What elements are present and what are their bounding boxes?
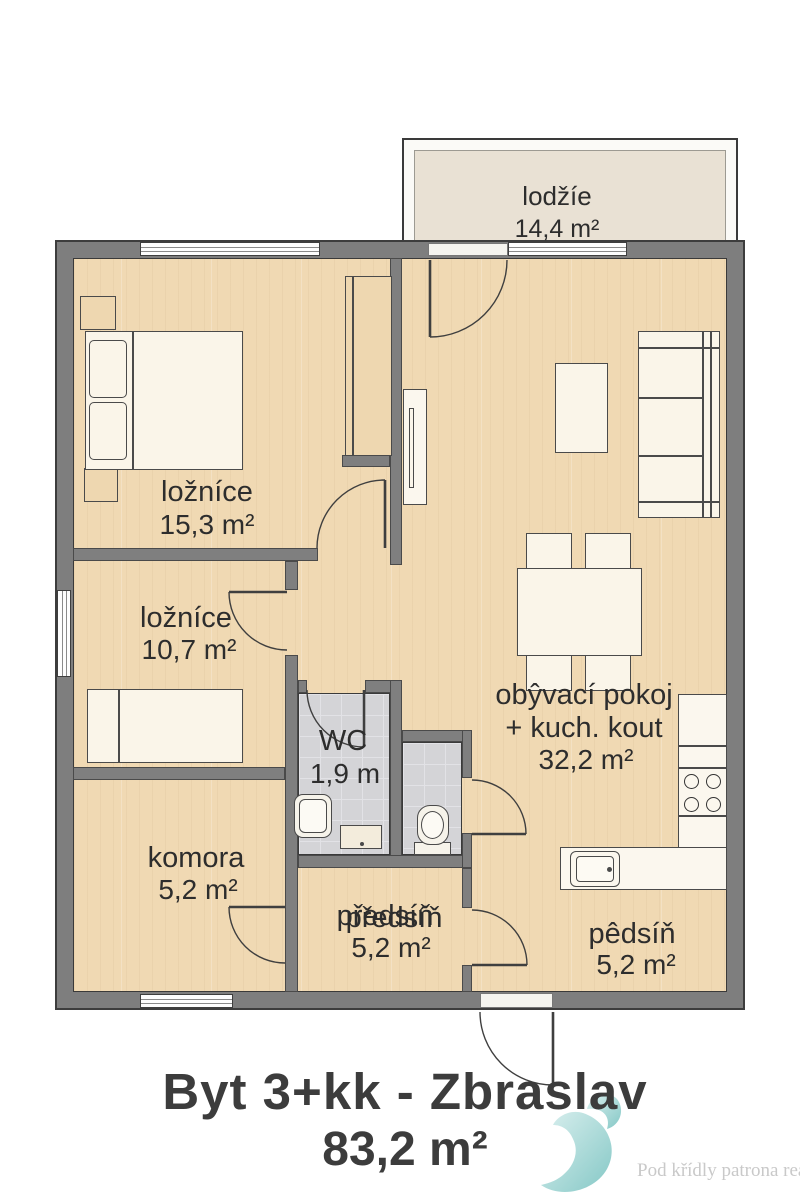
window	[140, 994, 233, 1008]
single-bed	[87, 689, 243, 763]
wall-segment	[462, 868, 472, 908]
counter-line	[679, 745, 726, 747]
wardrobe-line	[352, 277, 354, 455]
room-label-obyvaci-1: obŷvací pokoj	[495, 681, 672, 710]
sofa	[638, 331, 720, 518]
wall-segment	[73, 767, 285, 780]
wall-segment	[462, 730, 472, 778]
balcony-door-threshold	[428, 243, 508, 256]
wall-segment	[462, 965, 472, 992]
pillow	[89, 340, 127, 398]
room-label-chodba-ghost: předsíň	[346, 904, 443, 933]
sofa-armrest-line	[639, 501, 719, 503]
floor-plan-canvas: lodžíe 14,4 m² ložníce 15,3 m² ložníce 1…	[0, 0, 800, 1200]
chair	[585, 533, 631, 571]
tv-stand	[403, 389, 427, 505]
wall-segment	[390, 680, 402, 868]
counter-line	[679, 815, 726, 817]
wall-segment	[342, 455, 390, 467]
chair	[526, 533, 572, 571]
sofa-cushion-line	[639, 455, 703, 457]
stove-burner-icon	[706, 774, 721, 789]
plan-total-area: 83,2 m²	[322, 1122, 487, 1177]
room-area-predsin: 5,2 m²	[596, 951, 675, 979]
window	[57, 590, 71, 677]
wall-segment	[298, 855, 472, 868]
room-area-loznice1: 15,3 m²	[160, 511, 255, 539]
stove-burner-icon	[684, 797, 699, 812]
tv-icon	[409, 408, 414, 488]
wall-segment	[298, 680, 307, 693]
room-area-chodba: 5,2 m²	[351, 934, 430, 962]
room-area-loznice2: 10,7 m²	[142, 636, 237, 664]
room-area-komora: 5,2 m²	[158, 876, 237, 904]
room-label-loznice2: ložníce	[140, 604, 232, 633]
room-label-lodzie: lodžíe	[522, 183, 591, 209]
plan-title: Byt 3+kk - Zbraslav	[162, 1062, 647, 1121]
cabinet-knob-icon	[360, 842, 364, 846]
pillow	[89, 402, 127, 460]
room-area-wc: 1,9 m	[310, 760, 380, 788]
room-label-wc: WC	[319, 727, 367, 756]
room-area-obyvaci: 32,2 m²	[539, 746, 634, 774]
stove-burner-icon	[684, 774, 699, 789]
room-label-komora: komora	[148, 844, 245, 873]
bed-line	[118, 690, 120, 762]
wall-segment	[462, 833, 472, 868]
stove-burner-icon	[706, 797, 721, 812]
coffee-table	[555, 363, 608, 453]
sofa-cushion-line	[639, 397, 703, 399]
room-label-obyvaci-2: + kuch. kout	[505, 714, 662, 743]
washbasin-inner	[299, 799, 327, 833]
toilet-seat	[421, 811, 444, 839]
wall-segment	[73, 548, 318, 561]
nightstand	[84, 468, 118, 502]
sofa-back-line	[710, 332, 712, 517]
bed-line	[132, 332, 134, 469]
counter-line	[679, 767, 726, 769]
room-area-lodzie: 14,4 m²	[515, 217, 600, 242]
watermark-text: Pod křídly patrona realit	[637, 1160, 800, 1182]
room-label-loznice1: ložníce	[161, 478, 253, 507]
entry-door-threshold	[480, 993, 553, 1008]
faucet-icon	[607, 867, 612, 872]
nightstand	[80, 296, 116, 330]
window	[508, 242, 627, 256]
window	[140, 242, 320, 256]
sofa-back-line	[702, 332, 704, 517]
sofa-armrest-line	[639, 347, 719, 349]
room-label-predsin: pêdsíň	[588, 920, 675, 949]
dining-table	[517, 568, 642, 656]
wall-segment	[285, 561, 298, 590]
